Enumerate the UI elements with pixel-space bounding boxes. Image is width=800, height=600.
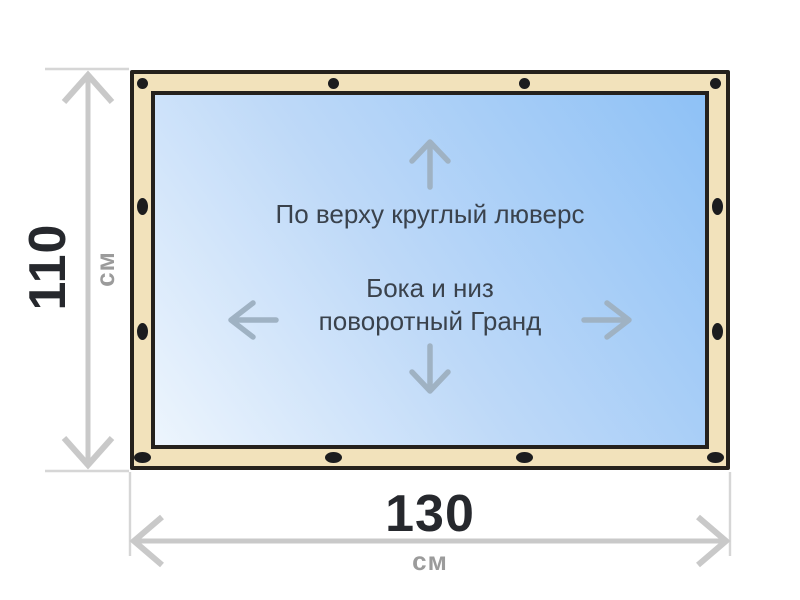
sides-attachment-note-line2: поворотный Гранд	[155, 305, 705, 338]
oval-grommet-icon	[516, 452, 533, 463]
width-unit: см	[380, 546, 480, 576]
height-value: 110	[18, 167, 78, 367]
arrow-head-left-icon	[134, 517, 162, 565]
oval-grommet-icon	[134, 452, 151, 463]
banner-dimensions-diagram: По верху круглый люверс Бока и низ повор…	[0, 0, 800, 600]
oval-grommet-icon	[712, 198, 723, 215]
arrow-head-down-icon	[64, 438, 112, 465]
banner-frame	[130, 70, 730, 470]
oval-grommet-icon	[137, 198, 148, 215]
oval-grommet-icon	[137, 323, 148, 340]
round-grommet-icon	[519, 78, 530, 89]
oval-grommet-icon	[707, 452, 724, 463]
sides-attachment-note: Бока и низ поворотный Гранд	[155, 272, 705, 338]
round-grommet-icon	[328, 78, 339, 89]
height-unit: см	[90, 219, 120, 319]
arrow-head-right-icon	[698, 517, 726, 565]
top-attachment-note: По верху круглый люверс	[155, 198, 705, 231]
width-value: 130	[330, 486, 530, 542]
oval-grommet-icon	[325, 452, 342, 463]
oval-grommet-icon	[712, 323, 723, 340]
arrow-head-up-icon	[64, 75, 112, 102]
sides-attachment-note-line1: Бока и низ	[155, 272, 705, 305]
round-grommet-icon	[710, 78, 721, 89]
banner-canvas	[151, 91, 709, 449]
round-grommet-icon	[137, 78, 148, 89]
